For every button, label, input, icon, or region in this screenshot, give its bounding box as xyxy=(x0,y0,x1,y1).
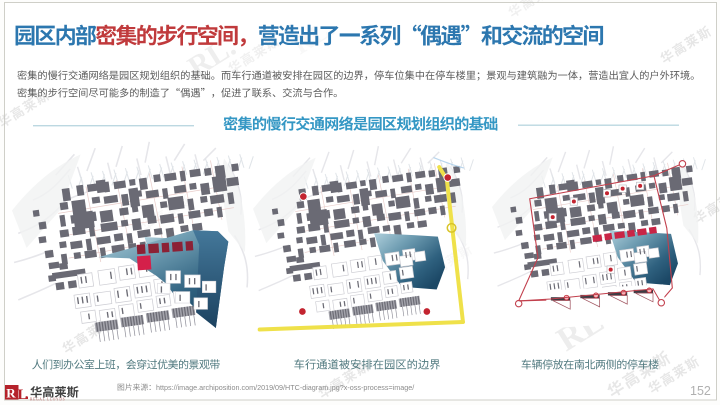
svg-text:https://image.archiposition.co: https://image.archiposition.com/2019/09/… xyxy=(156,383,414,392)
svg-text:152: 152 xyxy=(690,384,711,398)
svg-text:REGAL LLOYDS: REGAL LLOYDS xyxy=(30,398,65,402)
svg-text:R: R xyxy=(6,386,16,401)
svg-text:L: L xyxy=(18,387,28,403)
